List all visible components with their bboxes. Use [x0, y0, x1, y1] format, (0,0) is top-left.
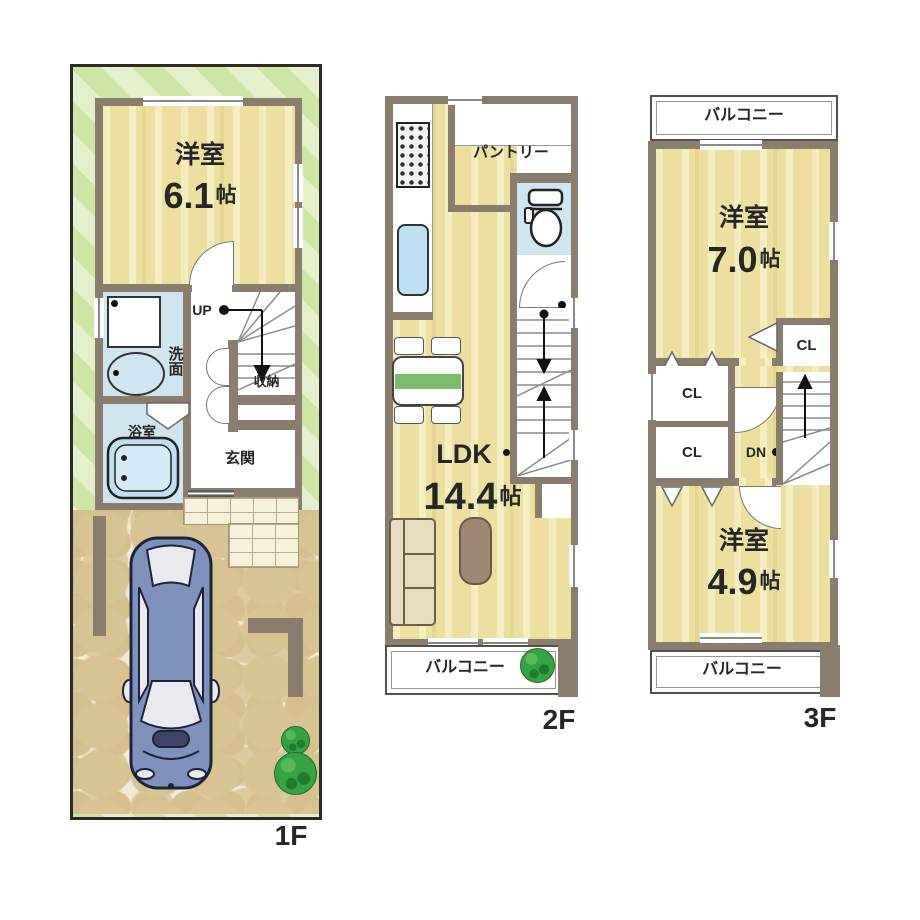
window-marker: [569, 298, 579, 328]
pantry-wall-bottom: [448, 205, 517, 212]
balcony-label-3f-top: バルコニー: [688, 106, 800, 126]
stairs-3f: [783, 372, 830, 485]
sofa-icon: [389, 518, 436, 626]
sofa-cushion-line: [403, 587, 434, 589]
ldk-size-unit: 帖: [499, 486, 521, 508]
window-marker: [700, 140, 762, 150]
shrub-icon: [520, 648, 555, 683]
window-marker: [569, 545, 579, 587]
chair-icon: [431, 406, 461, 424]
ldk-size: 14.4帖: [405, 477, 540, 517]
closet2-label: CL: [656, 381, 728, 405]
room-size-1f: 6.1帖: [120, 176, 280, 216]
balcony-wall-3f: [820, 645, 840, 697]
window-marker: [700, 633, 762, 643]
ldk-label: LDK: [424, 440, 504, 468]
room-size-value: 4.9: [708, 564, 758, 600]
counter-end-wall: [385, 312, 433, 320]
room-size-unit: 帖: [760, 572, 781, 593]
chair-icon: [394, 406, 424, 424]
toilet-stairs-wall-left: [510, 183, 517, 477]
floor-tag-1f: 1F: [262, 820, 320, 852]
door-opening: [192, 284, 232, 292]
floor-tag-3f: 3F: [796, 702, 844, 734]
entrance-door-icon: [188, 490, 234, 497]
sofa-cushion-line: [403, 553, 434, 555]
room-size-3f-bottom: 4.9帖: [664, 562, 824, 602]
porch-tiles-upper: [183, 497, 299, 525]
window-marker: [94, 298, 104, 338]
room-size-value: 6.1: [164, 178, 214, 214]
shrub-icon: [281, 726, 310, 755]
dining-table-icon: [392, 356, 464, 406]
cl1-wall-top: [776, 318, 830, 325]
washer-faucet-icon: [111, 300, 118, 307]
balcony-label-3f-bottom: バルコニー: [686, 660, 798, 680]
window-marker: [829, 540, 839, 578]
car-icon: [122, 533, 220, 793]
window-marker: [829, 222, 839, 260]
storage-label: 収納: [238, 372, 295, 390]
pantry-shelf: [455, 104, 571, 146]
room-size-unit: 帖: [216, 186, 237, 207]
entrance-top-wall: [238, 420, 295, 430]
closet3-label: CL: [656, 440, 728, 464]
washroom-label: 洗面: [166, 328, 184, 394]
ldk-leader-dot: [503, 449, 510, 456]
gate-wall-top: [248, 618, 303, 633]
fence-wall-left: [93, 516, 106, 636]
chair-icon: [394, 337, 424, 355]
entrance-label: 玄関: [208, 448, 272, 468]
room-size-value: 7.0: [708, 242, 758, 278]
toilet-wall-top: [510, 173, 571, 183]
window-marker: [647, 374, 657, 420]
room-name-3f-bottom: 洋室: [674, 526, 814, 556]
balcony-label-2f: バルコニー: [405, 658, 525, 678]
stove-icon: [396, 122, 430, 188]
pantry-label: パントリー: [452, 143, 570, 161]
window-marker: [293, 208, 303, 248]
shrub-icon: [274, 752, 317, 795]
bathtub-icon: [106, 436, 180, 500]
room-size-unit: 帖: [760, 250, 781, 271]
ldk-size-value: 14.4: [423, 478, 497, 516]
table-runner: [395, 374, 461, 389]
window-marker: [569, 430, 579, 460]
coffee-table-icon: [459, 517, 492, 585]
stairs-2f: [517, 308, 571, 477]
kitchen-sink-icon: [397, 224, 429, 296]
toilet-icon: [524, 188, 566, 250]
room-size-3f-top: 7.0帖: [664, 240, 824, 280]
door-opening: [739, 478, 772, 486]
sofa-back-line: [403, 520, 405, 624]
floor-plan-canvas: UP 収納 洗面 浴室 玄関 洋室 6.1帖: [0, 0, 920, 920]
stairs-wall-left-3f: [776, 372, 783, 485]
cl1-door-icon: [748, 322, 778, 352]
up-label: UP: [186, 302, 218, 318]
window-marker: [293, 164, 303, 202]
closet1-label: CL: [783, 333, 830, 357]
sink-faucet-icon: [113, 370, 119, 376]
door-opening: [739, 358, 772, 366]
window-marker: [143, 96, 243, 106]
stair-niche: [542, 484, 571, 518]
gate-wall-right: [288, 633, 303, 697]
room-name-3f-top: 洋室: [674, 203, 814, 233]
dn-label: DN: [740, 444, 772, 460]
cl-folding-door-icon: [660, 486, 724, 508]
balcony-wall-2f: [558, 640, 578, 697]
porch-tiles-lower: [228, 523, 299, 568]
chair-icon: [431, 337, 461, 355]
window-marker: [448, 95, 482, 105]
storage-bottom-wall: [238, 395, 295, 405]
room-name-1f: 洋室: [120, 140, 280, 170]
cl-wall-right: [728, 366, 735, 486]
floor-tag-2f: 2F: [535, 704, 583, 736]
